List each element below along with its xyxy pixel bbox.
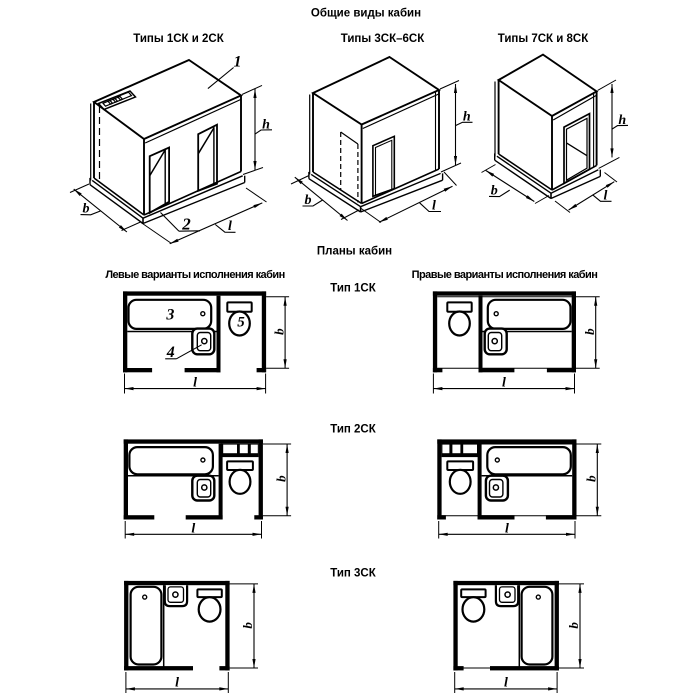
svg-text:l: l xyxy=(191,521,195,536)
svg-text:1: 1 xyxy=(234,54,242,71)
svg-text:b: b xyxy=(566,622,581,629)
svg-text:b: b xyxy=(273,475,288,482)
svg-text:b: b xyxy=(305,193,312,208)
svg-text:Тип 2СК: Тип 2СК xyxy=(330,423,376,435)
svg-text:l: l xyxy=(505,521,509,536)
svg-text:b: b xyxy=(491,183,498,198)
svg-text:Тип 3СК: Тип 3СК xyxy=(330,568,376,580)
svg-text:l: l xyxy=(175,675,179,690)
svg-text:Тип 1СК: Тип 1СК xyxy=(330,283,376,295)
svg-text:h: h xyxy=(463,110,471,125)
svg-text:3: 3 xyxy=(165,306,174,323)
svg-text:l: l xyxy=(504,675,508,690)
svg-text:Типы 1СК и 2СК: Типы 1СК и 2СК xyxy=(133,33,224,45)
svg-text:l: l xyxy=(193,376,197,391)
svg-text:5: 5 xyxy=(237,314,245,330)
svg-text:l: l xyxy=(228,219,232,234)
svg-text:l: l xyxy=(432,199,436,214)
svg-text:Общие виды кабин: Общие виды кабин xyxy=(311,8,421,20)
svg-text:l: l xyxy=(502,376,506,391)
svg-text:Планы кабин: Планы кабин xyxy=(317,245,392,257)
svg-text:h: h xyxy=(262,117,270,132)
svg-text:Правые варианты исполнения каб: Правые варианты исполнения кабин xyxy=(412,269,598,281)
svg-text:b: b xyxy=(584,475,599,482)
svg-text:Левые варианты исполнения каби: Левые варианты исполнения кабин xyxy=(105,269,284,281)
svg-text:b: b xyxy=(83,201,90,216)
svg-text:b: b xyxy=(271,328,286,335)
svg-text:Типы 7СК и 8СК: Типы 7СК и 8СК xyxy=(498,33,589,45)
svg-text:b: b xyxy=(582,328,597,335)
svg-text:l: l xyxy=(604,189,608,204)
svg-text:h: h xyxy=(618,113,626,128)
svg-text:b: b xyxy=(240,622,255,629)
svg-text:Типы 3СК–6СК: Типы 3СК–6СК xyxy=(341,33,425,45)
